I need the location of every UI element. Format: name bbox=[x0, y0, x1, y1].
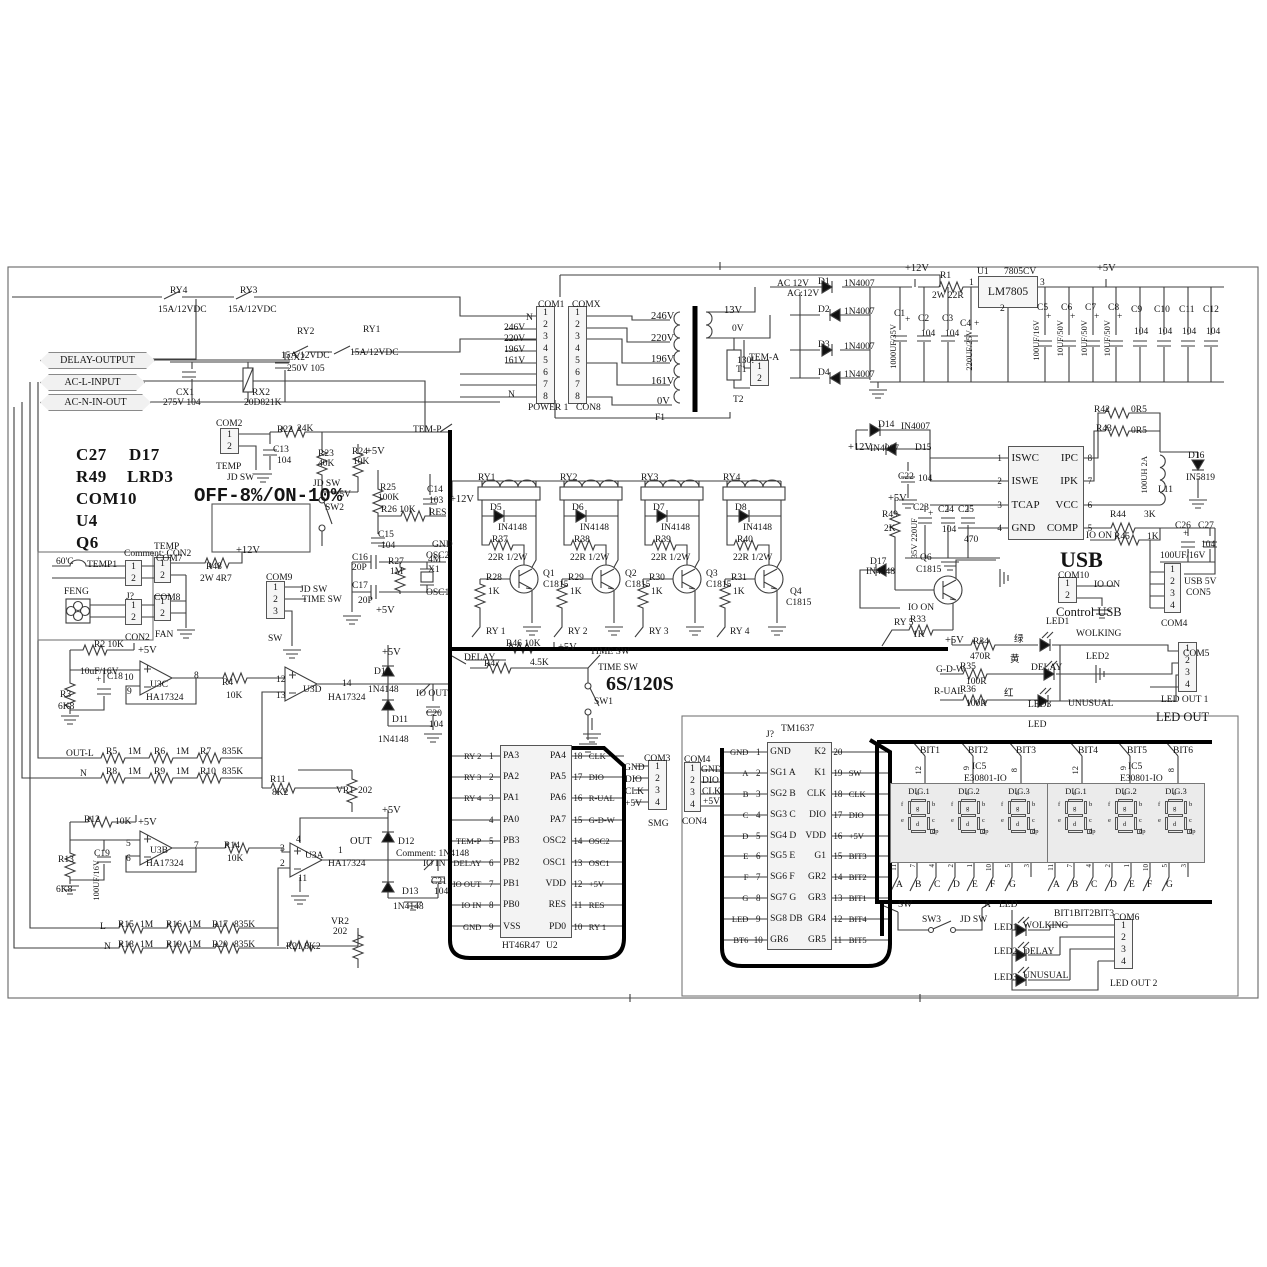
segment-label: b bbox=[1189, 802, 1192, 809]
connector-pin: 8 bbox=[569, 391, 586, 403]
segment-label: c bbox=[982, 818, 985, 825]
segment-label: b bbox=[982, 802, 985, 809]
connector-pin: 2 bbox=[1059, 590, 1076, 602]
seven-segment-glyph: afbgecddp bbox=[1115, 799, 1137, 833]
ic-pin-text: IO IN bbox=[446, 900, 483, 910]
connector-pin: 1 bbox=[751, 361, 768, 373]
seven-segment-glyph: afbgecddp bbox=[958, 799, 980, 833]
ic-pin-text: 4 bbox=[750, 810, 766, 820]
ic-pin-text: G bbox=[721, 893, 750, 903]
ic-pin-names: PB0RES bbox=[499, 895, 570, 916]
connector-pin: 2 bbox=[126, 612, 141, 624]
segment-d bbox=[1011, 830, 1026, 833]
segment-label: f bbox=[1058, 802, 1060, 809]
ic-pin-text: 2 bbox=[992, 476, 1008, 486]
ic-pin-text: 15 bbox=[830, 851, 846, 861]
segment-a bbox=[911, 799, 926, 802]
ic-pin-names: GR6GR5 bbox=[766, 929, 830, 950]
ic-tm1637: GND1GNDK220A2SG1 AK119SWB3SG2 BCLK18CLKC… bbox=[721, 742, 882, 950]
ic-pin-text: 9 bbox=[750, 914, 766, 924]
ic-pin-text: CLK bbox=[807, 789, 826, 799]
ic-pin-text: COMP bbox=[1047, 522, 1078, 534]
segment-label: d bbox=[1123, 822, 1126, 829]
ic-pin-row: 2ISWEIPK7 bbox=[982, 470, 1130, 494]
ic-pin-names: VSSPD0 bbox=[499, 916, 570, 937]
ic-pin-text: 1 bbox=[750, 747, 766, 757]
ic-pin-text: 3 bbox=[483, 793, 499, 803]
ic-pin-text: 2 bbox=[750, 768, 766, 778]
ic-pin-text: 7 bbox=[750, 872, 766, 882]
ic-pin-names: PA3PA4 bbox=[499, 745, 570, 766]
net-flag-label: AC-N-IN-OUT bbox=[64, 397, 126, 408]
ic-pin-text: 13 bbox=[570, 858, 586, 868]
ic-pin-text: DIO bbox=[846, 810, 882, 820]
segment-label: a bbox=[1173, 791, 1176, 798]
ic-pin-text: BIT5 bbox=[846, 935, 882, 945]
connector-com2: 12 bbox=[220, 428, 239, 454]
segment-b bbox=[977, 801, 980, 814]
connector-com1: 12345678 bbox=[536, 306, 555, 404]
ic-pin-text: DIO bbox=[809, 810, 826, 820]
segment-a bbox=[1118, 799, 1133, 802]
seven-seg-display-1: DIG.1afbgecddpDIG.2afbgecddpDIG.3afbgecd… bbox=[890, 783, 1048, 863]
connector-pin: 4 bbox=[1115, 956, 1132, 968]
ic-pin-text: ISWC bbox=[1011, 452, 1039, 464]
ic-pin-text: VDD bbox=[545, 879, 566, 889]
connector-pin: 2 bbox=[649, 773, 666, 785]
connector-pin: 3 bbox=[1179, 667, 1196, 679]
connector-pin: 1 bbox=[1179, 643, 1196, 655]
ic-pin-row: D5SG4 DVDD16+5V bbox=[721, 825, 882, 846]
schematic-graphics bbox=[0, 0, 1267, 1267]
segment-a bbox=[1011, 799, 1026, 802]
ic-pin-row: A2SG1 AK119SW bbox=[721, 763, 882, 784]
net-flag-ac-l-input: AC-L-INPUT bbox=[40, 374, 145, 391]
ic-pin-text: GND bbox=[446, 922, 483, 932]
segment-label: c bbox=[1189, 818, 1192, 825]
ic-pin-text: GND bbox=[770, 747, 791, 757]
connector-pin: 2 bbox=[155, 608, 170, 620]
ic-pin-text: SG5 E bbox=[770, 851, 795, 861]
ic-pin-names: PB3OSC2 bbox=[499, 831, 570, 852]
connector-pin: 6 bbox=[569, 367, 586, 379]
segment-label: g bbox=[1073, 806, 1076, 813]
connector-pin: 1 bbox=[537, 307, 554, 319]
segment-label: d bbox=[1073, 822, 1076, 829]
ic-pin-text: 8 bbox=[750, 893, 766, 903]
ic-pin-names: PB2OSC1 bbox=[499, 852, 570, 873]
display-digit: DIG.3afbgecddp bbox=[996, 786, 1042, 833]
ic-pin-text: ISWE bbox=[1011, 475, 1038, 487]
segment-e bbox=[958, 817, 961, 830]
display-digit: DIG.3afbgecddp bbox=[1153, 786, 1199, 833]
ic-pin-text: 11 bbox=[830, 935, 846, 945]
ic-pin-text: E bbox=[721, 851, 750, 861]
ic-pin-text: GR5 bbox=[808, 935, 826, 945]
ic-pin-text: 16 bbox=[570, 793, 586, 803]
segment-label: dp bbox=[932, 829, 939, 836]
ic-pin-text: K1 bbox=[814, 768, 826, 778]
ic-pin-text: RES bbox=[586, 900, 634, 910]
segment-f bbox=[1065, 801, 1068, 814]
connector-pin: 8 bbox=[537, 391, 554, 403]
segment-label: f bbox=[1108, 802, 1110, 809]
segment-b bbox=[1184, 801, 1187, 814]
ic-pin-text: PA2 bbox=[503, 772, 519, 782]
connector-pin: 3 bbox=[537, 331, 554, 343]
segment-label: f bbox=[1001, 802, 1003, 809]
connector-con4: 1234 bbox=[684, 762, 701, 812]
ic-pin-text: RY 3 bbox=[446, 772, 483, 782]
segment-f bbox=[1008, 801, 1011, 814]
connector-pin: 2 bbox=[1165, 576, 1180, 588]
ic-pin-row: GND9VSSPD010RY 1 bbox=[446, 916, 634, 937]
segment-label: c bbox=[932, 818, 935, 825]
segment-e bbox=[1065, 817, 1068, 830]
segment-label: e bbox=[951, 818, 954, 825]
segment-d bbox=[1118, 830, 1133, 833]
ic-pin-text: 10 bbox=[750, 935, 766, 945]
connector-pin: 2 bbox=[537, 319, 554, 331]
ic-pin-text: 9 bbox=[483, 922, 499, 932]
segment-label: a bbox=[1073, 791, 1076, 798]
ic-pin-text: GR4 bbox=[808, 914, 826, 924]
connector-com8: 12 bbox=[154, 595, 171, 621]
ic-pin-text: 6 bbox=[1082, 500, 1098, 510]
ic-pin-text: RY 4 bbox=[446, 793, 483, 803]
ic-pin-text: SG4 D bbox=[770, 831, 796, 841]
segment-label: d bbox=[1173, 822, 1176, 829]
segment-label: dp bbox=[1032, 829, 1039, 836]
connector-pin: 2 bbox=[569, 319, 586, 331]
connector-con2: 12 bbox=[125, 599, 142, 625]
connector-pin: 4 bbox=[1179, 679, 1196, 691]
digit-header: DIG.1 bbox=[1053, 786, 1099, 796]
connector-pin: 4 bbox=[1165, 600, 1180, 612]
segment-e bbox=[908, 817, 911, 830]
ic-pin-text: TCAP bbox=[1011, 499, 1039, 511]
ic-pin-text: IO OUT bbox=[446, 879, 483, 889]
ic-pin-names: SG4 DVDD bbox=[766, 825, 830, 846]
ic-mc34063: 1ISWCIPC82ISWEIPK73TCAPVCC64GNDCOMP5 bbox=[982, 446, 1130, 540]
ic-pin-text: LED bbox=[721, 914, 750, 924]
ic-pin-text: RY 1 bbox=[586, 922, 634, 932]
ic-pin-names: TCAPVCC bbox=[1007, 493, 1082, 517]
ic-pin-text: R-UAL bbox=[586, 793, 634, 803]
segment-label: e bbox=[1058, 818, 1061, 825]
ic-pin-text: PB3 bbox=[503, 836, 519, 846]
ic-pin-names: GNDCOMP bbox=[1007, 517, 1082, 541]
connector-pin: 7 bbox=[569, 379, 586, 391]
ic-pin-row: RY 21PA3PA418CLK bbox=[446, 745, 634, 766]
ic-pin-text: 12 bbox=[830, 914, 846, 924]
ic-pin-row: IO OUT7PB1VDD12+5V bbox=[446, 873, 634, 894]
segment-g bbox=[1011, 814, 1026, 817]
ic-pin-text: DIO bbox=[586, 772, 634, 782]
ic-pin-text: OSC1 bbox=[586, 858, 634, 868]
segment-label: f bbox=[901, 802, 903, 809]
ic-pin-row: GND1GNDK220 bbox=[721, 742, 882, 763]
ic-pin-text: DELAY bbox=[446, 858, 483, 868]
ic-pin-names: SG2 BCLK bbox=[766, 784, 830, 805]
connector-com9: 123 bbox=[266, 581, 285, 619]
segment-label: d bbox=[966, 822, 969, 829]
ic-pin-text: PA7 bbox=[550, 815, 566, 825]
ic-pin-text: 17 bbox=[570, 772, 586, 782]
connector-com7: 12 bbox=[154, 557, 171, 583]
ic-pin-text: PA5 bbox=[550, 772, 566, 782]
ic-pin-text: SG2 B bbox=[770, 789, 796, 799]
ic-pin-text: SG7 G bbox=[770, 893, 796, 903]
ic-pin-text: RY 2 bbox=[446, 751, 483, 761]
connector-pin: 3 bbox=[569, 331, 586, 343]
segment-g bbox=[1118, 814, 1133, 817]
segment-label: b bbox=[1032, 802, 1035, 809]
segment-g bbox=[911, 814, 926, 817]
ic-pin-text: SG8 DB bbox=[770, 914, 802, 924]
ic-pin-names: PB1VDD bbox=[499, 873, 570, 894]
ic-pin-text: OSC1 bbox=[543, 858, 566, 868]
ic-pin-text: 13 bbox=[830, 893, 846, 903]
ic-pin-text: K2 bbox=[814, 747, 826, 757]
segment-label: dp bbox=[1139, 829, 1146, 836]
ic-pin-text: 19 bbox=[830, 768, 846, 778]
segment-label: e bbox=[1158, 818, 1161, 825]
seven-segment-glyph: afbgecddp bbox=[1165, 799, 1187, 833]
segment-g bbox=[1068, 814, 1083, 817]
segment-label: g bbox=[1173, 806, 1176, 813]
ic-pin-row: RY 43PA1PA616R-UAL bbox=[446, 788, 634, 809]
ic-pin-text: GR6 bbox=[770, 935, 788, 945]
segment-label: e bbox=[1001, 818, 1004, 825]
segment-label: e bbox=[1108, 818, 1111, 825]
ic-pin-text: 10 bbox=[570, 922, 586, 932]
segment-label: a bbox=[966, 791, 969, 798]
ic-pin-text: GND bbox=[1011, 522, 1035, 534]
connector-pin: 4 bbox=[685, 799, 700, 811]
ic-pin-row: 3TCAPVCC6 bbox=[982, 493, 1130, 517]
segment-label: g bbox=[1016, 806, 1019, 813]
ic-pin-text: 14 bbox=[830, 872, 846, 882]
segment-b bbox=[1027, 801, 1030, 814]
ic-pin-names: SG3 CDIO bbox=[766, 804, 830, 825]
segment-d bbox=[1168, 830, 1183, 833]
segment-f bbox=[1115, 801, 1118, 814]
connector-pin: 5 bbox=[537, 355, 554, 367]
ic-pin-text: 8 bbox=[483, 900, 499, 910]
ic-pin-row: 1ISWCIPC8 bbox=[982, 446, 1130, 470]
ic-pin-text: 1 bbox=[992, 453, 1008, 463]
ic-pin-text: IPC bbox=[1061, 452, 1078, 464]
connector-com3: 1234 bbox=[648, 760, 667, 810]
seven-segment-glyph: afbgecddp bbox=[1065, 799, 1087, 833]
ic-pin-text: 3 bbox=[992, 500, 1008, 510]
ic-pin-text: IPK bbox=[1060, 475, 1078, 487]
connector-com4-usb: 1234 bbox=[1164, 563, 1181, 613]
ic-pin-text: CLK bbox=[586, 751, 634, 761]
segment-label: g bbox=[916, 806, 919, 813]
connector-pin: 4 bbox=[569, 343, 586, 355]
connector-j: 12 bbox=[125, 560, 142, 586]
ic-pin-text: 14 bbox=[570, 836, 586, 846]
connector-pin: 3 bbox=[685, 787, 700, 799]
ic-pin-text: D bbox=[721, 831, 750, 841]
ic-pin-text: SG6 F bbox=[770, 872, 795, 882]
digit-header: DIG.3 bbox=[1153, 786, 1199, 796]
ic-pin-text: 16 bbox=[830, 831, 846, 841]
digit-header: DIG.2 bbox=[1103, 786, 1149, 796]
ic-pin-row: 4GNDCOMP5 bbox=[982, 517, 1130, 541]
ic-pin-names: ISWCIPC bbox=[1007, 446, 1082, 470]
ic-pin-text: BIT3 bbox=[846, 851, 882, 861]
ic-pin-text: 2 bbox=[483, 772, 499, 782]
segment-f bbox=[1165, 801, 1168, 814]
seven-segment-glyph: afbgecddp bbox=[908, 799, 930, 833]
ic-pin-text: RES bbox=[549, 900, 566, 910]
display-digit: DIG.1afbgecddp bbox=[896, 786, 942, 833]
ic-pin-text: B bbox=[721, 789, 750, 799]
ic-pin-names: SG8 DBGR4 bbox=[766, 908, 830, 929]
connector-pin: 5 bbox=[569, 355, 586, 367]
connector-pin: 1 bbox=[155, 596, 170, 608]
ic-pin-text: PB1 bbox=[503, 879, 519, 889]
ic-pin-text: 5 bbox=[483, 836, 499, 846]
ic-pin-text: 4 bbox=[992, 523, 1008, 533]
ic-pin-row: BT610GR6GR511BIT5 bbox=[721, 929, 882, 950]
ic-pin-text: 8 bbox=[1082, 453, 1098, 463]
connector-pin: 2 bbox=[126, 573, 141, 585]
ic-ht46r47: RY 21PA3PA418CLKRY 32PA2PA517DIORY 43PA1… bbox=[446, 745, 634, 938]
ic-pin-text: TEM-P bbox=[446, 836, 483, 846]
seven-seg-display-2: DIG.1afbgecddpDIG.2afbgecddpDIG.3afbgecd… bbox=[1047, 783, 1205, 863]
segment-b bbox=[927, 801, 930, 814]
ic-pin-text: VSS bbox=[503, 922, 520, 932]
connector-pin: 1 bbox=[267, 582, 284, 594]
connector-pin: 4 bbox=[537, 343, 554, 355]
segment-f bbox=[908, 801, 911, 814]
connector-pin: 3 bbox=[1165, 588, 1180, 600]
ic-pin-row: DELAY6PB2OSC113OSC1 bbox=[446, 852, 634, 873]
connector-pin: 6 bbox=[537, 367, 554, 379]
ic-pin-text: 1 bbox=[483, 751, 499, 761]
ic-pin-row: G8SG7 GGR313BIT1 bbox=[721, 888, 882, 909]
seven-segment-glyph: afbgecddp bbox=[1008, 799, 1030, 833]
connector-pin: 2 bbox=[267, 594, 284, 606]
net-flag-label: AC-L-INPUT bbox=[64, 377, 120, 388]
ic-pin-text: 5 bbox=[750, 831, 766, 841]
ic-pin-row: LED9SG8 DBGR412BIT4 bbox=[721, 908, 882, 929]
ic-pin-text: BIT4 bbox=[846, 914, 882, 924]
segment-d bbox=[1068, 830, 1083, 833]
segment-b bbox=[1134, 801, 1137, 814]
ic-pin-text: PA3 bbox=[503, 751, 519, 761]
ic-pin-text: PD0 bbox=[549, 922, 566, 932]
segment-label: dp bbox=[982, 829, 989, 836]
connector-pin: 1 bbox=[685, 763, 700, 775]
ic-pin-text: 6 bbox=[483, 858, 499, 868]
ic-pin-text: 17 bbox=[830, 810, 846, 820]
connector-pin: 1 bbox=[155, 558, 170, 570]
ic-pin-text: 7 bbox=[483, 879, 499, 889]
connector-pin: 2 bbox=[685, 775, 700, 787]
connector-pin: 1 bbox=[221, 429, 238, 441]
ic-pin-text: CLK bbox=[846, 789, 882, 799]
connector-tem-a: 12 bbox=[750, 360, 769, 386]
ic-pin-names: PA0PA7 bbox=[499, 809, 570, 830]
display-digit: DIG.2afbgecddp bbox=[1103, 786, 1149, 833]
ic-pin-text: VCC bbox=[1055, 499, 1078, 511]
ic-pin-text: +5V bbox=[586, 879, 634, 889]
ic-lm7805: LM7805 bbox=[978, 276, 1038, 308]
segment-label: b bbox=[932, 802, 935, 809]
ic-pin-row: TEM-P5PB3OSC214OSC2 bbox=[446, 831, 634, 852]
ic-pin-text: SG1 A bbox=[770, 768, 796, 778]
segment-d bbox=[911, 830, 926, 833]
connector-pin: 3 bbox=[1115, 944, 1132, 956]
segment-label: f bbox=[951, 802, 953, 809]
segment-label: c bbox=[1032, 818, 1035, 825]
segment-label: g bbox=[966, 806, 969, 813]
ic-part-label: LM7805 bbox=[988, 286, 1028, 298]
ic-pin-text: GND bbox=[721, 747, 750, 757]
connector-pin: 2 bbox=[221, 441, 238, 453]
ic-pin-text: A bbox=[721, 768, 750, 778]
connector-pin: 1 bbox=[126, 600, 141, 612]
ic-pin-text: PA4 bbox=[550, 751, 566, 761]
ic-pin-text: 18 bbox=[570, 751, 586, 761]
ic-pin-row: C4SG3 CDIO17DIO bbox=[721, 804, 882, 825]
ic-pin-text: G-D-W bbox=[586, 815, 634, 825]
ic-pin-row: IO IN8PB0RES11RES bbox=[446, 895, 634, 916]
connector-pin: 2 bbox=[751, 373, 768, 385]
ic-pin-text: BIT2 bbox=[846, 872, 882, 882]
connector-pin: 7 bbox=[537, 379, 554, 391]
ic-pin-text: BT6 bbox=[721, 935, 750, 945]
ic-pin-row: 4PA0PA715G-D-W bbox=[446, 809, 634, 830]
ic-pin-names: PA2PA5 bbox=[499, 766, 570, 787]
ic-pin-text: 12 bbox=[570, 879, 586, 889]
ic-pin-text: 5 bbox=[1082, 523, 1098, 533]
ic-pin-names: PA1PA6 bbox=[499, 788, 570, 809]
connector-com5: 1234 bbox=[1178, 642, 1197, 692]
ic-pin-text: 7 bbox=[1082, 476, 1098, 486]
ic-pin-names: GNDK2 bbox=[766, 742, 830, 763]
connector-pin: 1 bbox=[1165, 564, 1180, 576]
ic-pin-text: PB0 bbox=[503, 900, 519, 910]
ic-pin-row: B3SG2 BCLK18CLK bbox=[721, 784, 882, 805]
digit-header: DIG.1 bbox=[896, 786, 942, 796]
connector-com10: 12 bbox=[1058, 577, 1077, 603]
ic-pin-text: OSC2 bbox=[543, 836, 566, 846]
ic-pin-row: RY 32PA2PA517DIO bbox=[446, 766, 634, 787]
segment-label: g bbox=[1123, 806, 1126, 813]
segment-label: c bbox=[1089, 818, 1092, 825]
connector-pin: 3 bbox=[267, 606, 284, 618]
segment-label: a bbox=[916, 791, 919, 798]
ic-pin-text: 18 bbox=[830, 789, 846, 799]
segment-f bbox=[958, 801, 961, 814]
net-flag-label: DELAY-OUTPUT bbox=[60, 355, 135, 366]
ic-pin-text: 11 bbox=[570, 900, 586, 910]
segment-label: dp bbox=[1089, 829, 1096, 836]
segment-a bbox=[961, 799, 976, 802]
connector-pin: 2 bbox=[155, 570, 170, 582]
ic-pin-text: SG3 C bbox=[770, 810, 796, 820]
connector-comx: 12345678 bbox=[568, 306, 587, 404]
ic-pin-names: SG5 EG1 bbox=[766, 846, 830, 867]
connector-com6: 1234 bbox=[1114, 919, 1133, 969]
ic-pin-text: SW bbox=[846, 768, 882, 778]
